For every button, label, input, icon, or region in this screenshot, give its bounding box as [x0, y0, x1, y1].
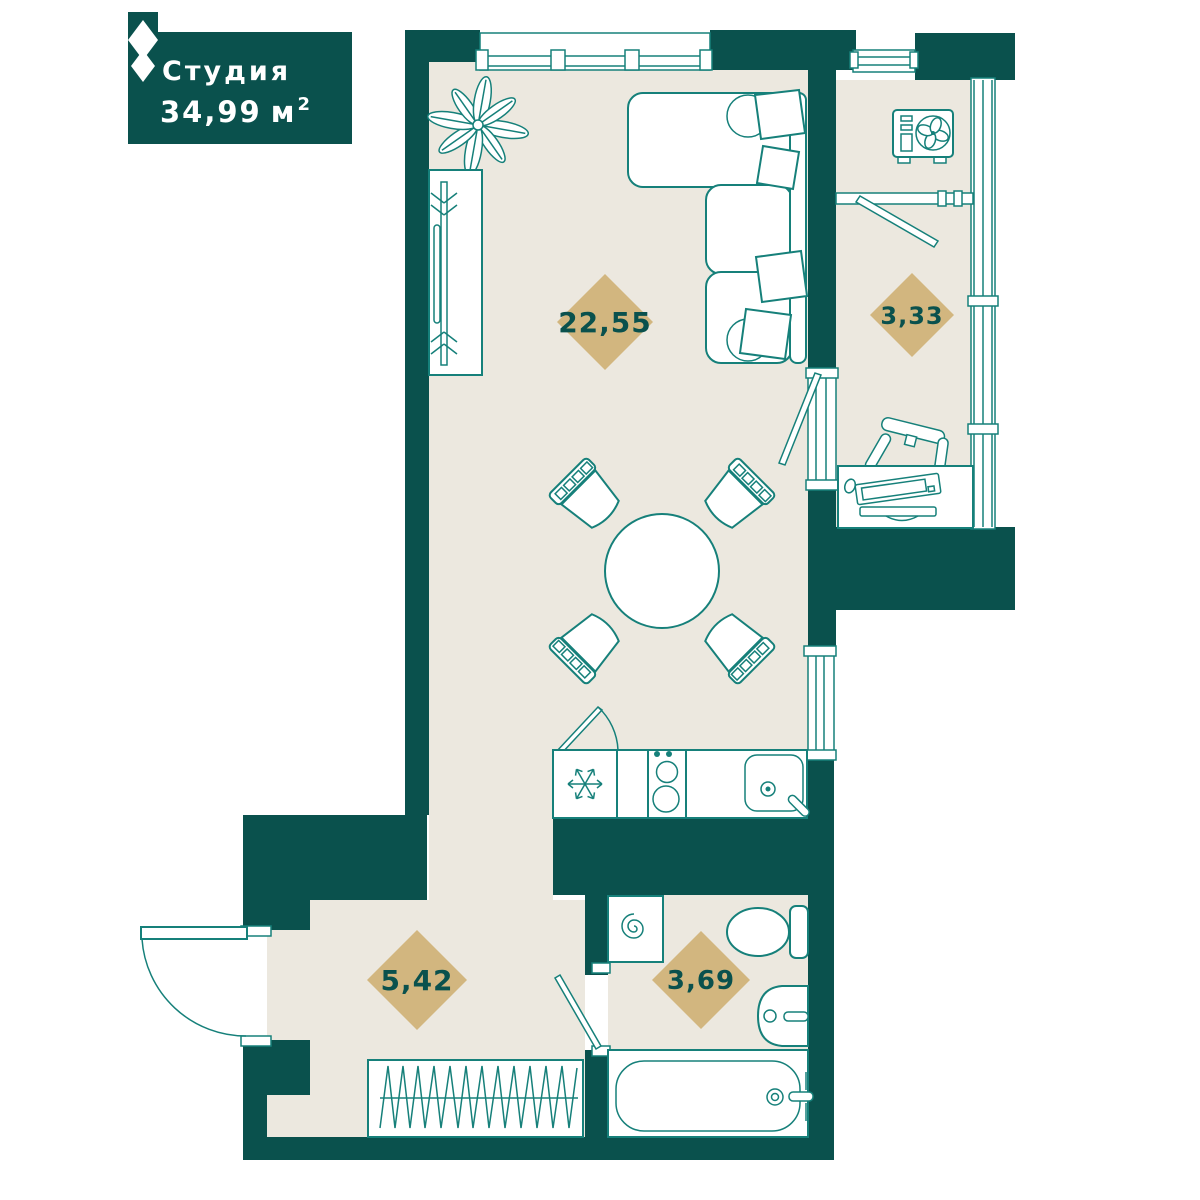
desk-icon: [838, 466, 973, 528]
hallway-area-label: 5,42: [380, 964, 453, 997]
card-area: 34,99м2: [160, 94, 312, 129]
window-icon: [804, 646, 836, 760]
pillow-icon: [755, 90, 805, 139]
air-conditioner-icon: [893, 110, 953, 163]
washing-machine-icon: [608, 896, 663, 962]
bathtub-icon: [608, 1050, 813, 1137]
wardrobe-icon: [429, 170, 482, 375]
toilet-icon: [727, 906, 808, 958]
wash-basin-icon: [758, 986, 808, 1046]
keyboard-icon: [860, 507, 936, 516]
pillow-icon: [756, 251, 807, 302]
living-area-label: 22,55: [558, 306, 652, 339]
pillow-icon: [740, 309, 791, 359]
coat-rack-icon: [368, 1060, 583, 1137]
window-icon: [476, 33, 712, 70]
dining-table-icon: [605, 514, 719, 628]
hallway: [368, 1060, 583, 1137]
balcony-area-label: 3,33: [880, 302, 943, 330]
card-title: Студия: [162, 56, 291, 87]
bathroom-area-label: 3,69: [667, 966, 735, 996]
kitchen: [553, 750, 811, 818]
fridge-icon: [553, 750, 617, 818]
window-icon: [850, 50, 918, 72]
glazing-icon: [968, 78, 998, 529]
floor-plan-svg: 22,55 3,33 5,42 3,69 Студия 34,99м2: [0, 0, 1200, 1200]
kitchen-sink-icon: [745, 755, 811, 818]
pillow-icon: [757, 146, 799, 189]
